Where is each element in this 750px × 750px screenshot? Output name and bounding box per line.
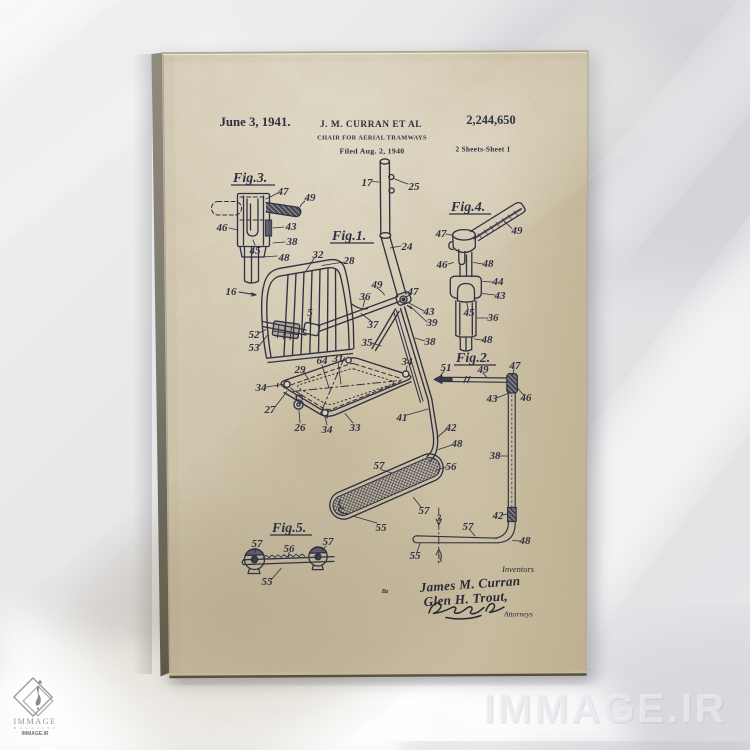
svg-text:57: 57 <box>374 460 386 472</box>
svg-text:46: 46 <box>520 392 533 404</box>
svg-text:32: 32 <box>312 249 325 261</box>
svg-text:43: 43 <box>486 393 499 405</box>
svg-text:43: 43 <box>285 221 298 233</box>
svg-text:37: 37 <box>367 319 380 331</box>
svg-text:June 3, 1941.: June 3, 1941. <box>219 115 290 129</box>
svg-text:48: 48 <box>519 535 532 547</box>
svg-text:Fig.3.: Fig.3. <box>232 171 267 186</box>
svg-text:38: 38 <box>286 236 299 248</box>
svg-text:48: 48 <box>451 438 464 450</box>
svg-text:2,244,650: 2,244,650 <box>466 113 515 127</box>
svg-text:55: 55 <box>410 550 422 562</box>
svg-text:35: 35 <box>361 337 374 349</box>
svg-text:44: 44 <box>492 276 505 288</box>
svg-text:Fig.5.: Fig.5. <box>271 521 306 536</box>
svg-text:47: 47 <box>407 286 420 298</box>
svg-text:3: 3 <box>437 554 443 564</box>
svg-text:Fig.1.: Fig.1. <box>331 229 366 244</box>
svg-text:57: 57 <box>323 536 335 548</box>
svg-text:56: 56 <box>446 461 458 473</box>
svg-text:57: 57 <box>252 538 264 550</box>
svg-text:Fig.4.: Fig.4. <box>450 200 485 215</box>
svg-text:17: 17 <box>362 177 374 189</box>
svg-text:16: 16 <box>226 286 238 298</box>
svg-text:36: 36 <box>487 312 500 324</box>
svg-text:2 Sheets-Sheet 1: 2 Sheets-Sheet 1 <box>455 145 510 154</box>
svg-text:55: 55 <box>262 576 274 588</box>
svg-text:45: 45 <box>249 245 262 257</box>
svg-text:42: 42 <box>445 422 458 434</box>
svg-text:55: 55 <box>376 522 388 534</box>
svg-text:49: 49 <box>304 192 317 204</box>
svg-text:41: 41 <box>396 412 408 424</box>
svg-text:53: 53 <box>249 342 261 354</box>
svg-text:Filed Aug. 2, 1940: Filed Aug. 2, 1940 <box>340 147 405 156</box>
svg-text:CHAIR FOR AERIAL TRAMWAYS: CHAIR FOR AERIAL TRAMWAYS <box>317 135 427 142</box>
svg-text:46: 46 <box>216 222 229 234</box>
svg-text:48: 48 <box>278 252 291 264</box>
svg-text:33: 33 <box>349 422 362 434</box>
svg-text:47: 47 <box>509 360 522 372</box>
svg-text:34: 34 <box>255 382 268 394</box>
svg-text:56: 56 <box>284 543 296 555</box>
svg-text:48: 48 <box>481 334 494 346</box>
svg-text:49: 49 <box>477 364 490 376</box>
svg-text:34: 34 <box>321 424 334 436</box>
svg-text:Attorneys: Attorneys <box>503 610 533 619</box>
svg-text:IMMAGE.IR: IMMAGE.IR <box>22 731 49 737</box>
svg-text:47: 47 <box>435 228 448 240</box>
svg-text:34: 34 <box>401 356 414 368</box>
svg-text:IMMAGE.IR: IMMAGE.IR <box>483 685 726 731</box>
svg-text:42: 42 <box>492 510 505 522</box>
svg-text:36: 36 <box>359 291 372 303</box>
svg-text:49: 49 <box>371 279 384 291</box>
svg-text:24: 24 <box>401 241 414 253</box>
svg-text:47: 47 <box>277 186 290 198</box>
svg-text:38: 38 <box>489 450 502 462</box>
svg-text:28: 28 <box>343 255 356 267</box>
svg-text:49: 49 <box>511 225 524 237</box>
svg-text:43: 43 <box>494 290 507 302</box>
svg-text:48: 48 <box>482 258 495 270</box>
svg-text:31: 31 <box>332 353 344 365</box>
svg-text:45: 45 <box>463 307 476 319</box>
svg-text:46: 46 <box>436 259 449 271</box>
svg-text:25: 25 <box>408 181 421 193</box>
svg-text:52: 52 <box>249 329 261 341</box>
svg-text:57: 57 <box>463 521 475 533</box>
svg-text:3: 3 <box>436 513 442 523</box>
svg-text:26: 26 <box>294 422 307 434</box>
svg-text:64: 64 <box>317 355 329 367</box>
svg-text:51: 51 <box>441 362 452 374</box>
svg-text:29: 29 <box>294 364 307 376</box>
svg-text:J. M. CURRAN ET AL: J. M. CURRAN ET AL <box>320 120 422 130</box>
svg-text:M A G A Z I N E: M A G A Z I N E <box>13 726 56 730</box>
svg-text:27: 27 <box>264 404 277 416</box>
svg-text:IMMAGE: IMMAGE <box>13 717 56 726</box>
svg-text:57: 57 <box>419 505 431 517</box>
svg-text:Bz: Bz <box>381 588 389 595</box>
svg-text:38: 38 <box>424 336 437 348</box>
svg-text:39: 39 <box>426 317 439 329</box>
svg-text:5: 5 <box>307 307 313 319</box>
